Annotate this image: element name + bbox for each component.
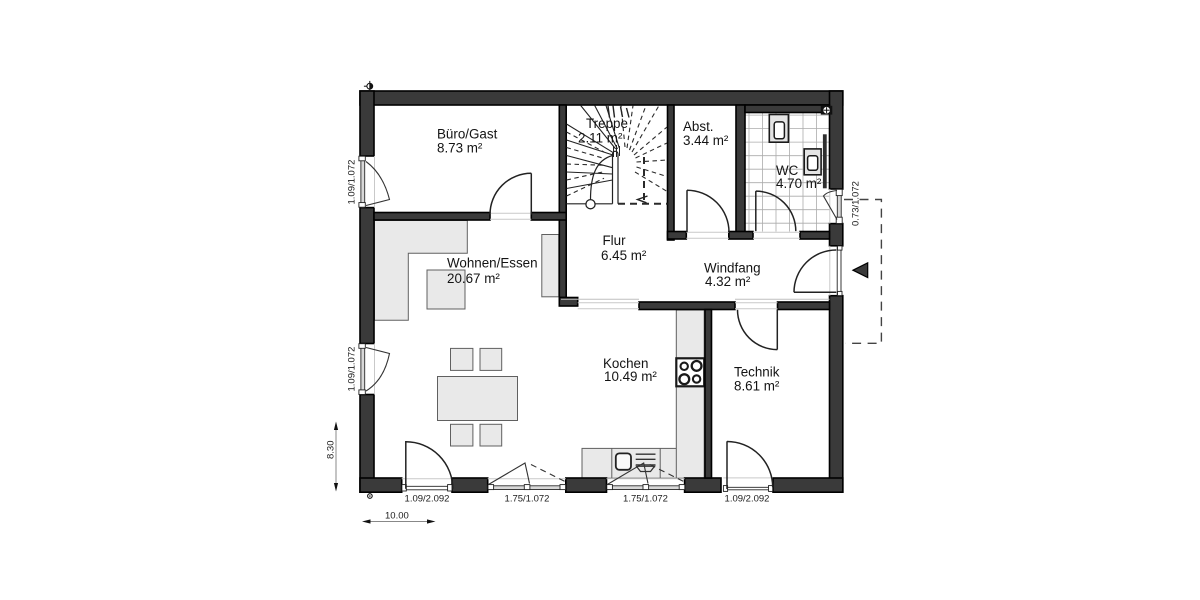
svg-text:10.00: 10.00 [385, 511, 409, 522]
svg-text:1.09/1.072: 1.09/1.072 [347, 160, 358, 205]
svg-text:1.75/1.072: 1.75/1.072 [505, 494, 550, 505]
svg-text:Windfang: Windfang [704, 260, 761, 275]
svg-text:Treppe: Treppe [586, 116, 628, 131]
svg-text:6.45 m²: 6.45 m² [601, 248, 647, 263]
svg-text:Wohnen/Essen: Wohnen/Essen [447, 255, 538, 270]
svg-text:8.73 m²: 8.73 m² [437, 140, 483, 155]
svg-text:2.11 m²: 2.11 m² [578, 131, 623, 146]
svg-text:1.09/2.092: 1.09/2.092 [725, 494, 770, 505]
svg-text:3.44 m²: 3.44 m² [683, 133, 729, 148]
svg-text:1.09/2.092: 1.09/2.092 [405, 494, 450, 505]
svg-text:8.30: 8.30 [326, 441, 337, 460]
svg-text:Technik: Technik [734, 364, 780, 379]
svg-text:20.67 m²: 20.67 m² [447, 271, 500, 286]
svg-text:1.09/1.072: 1.09/1.072 [347, 347, 358, 392]
svg-text:1.75/1.072: 1.75/1.072 [623, 494, 668, 505]
svg-text:4.70 m²: 4.70 m² [776, 176, 822, 191]
svg-text:0.73/1.072: 0.73/1.072 [851, 181, 862, 226]
svg-text:4.32 m²: 4.32 m² [705, 274, 751, 289]
svg-text:8.61 m²: 8.61 m² [734, 379, 780, 394]
svg-text:Flur: Flur [603, 233, 627, 248]
svg-text:10.49 m²: 10.49 m² [604, 369, 657, 384]
